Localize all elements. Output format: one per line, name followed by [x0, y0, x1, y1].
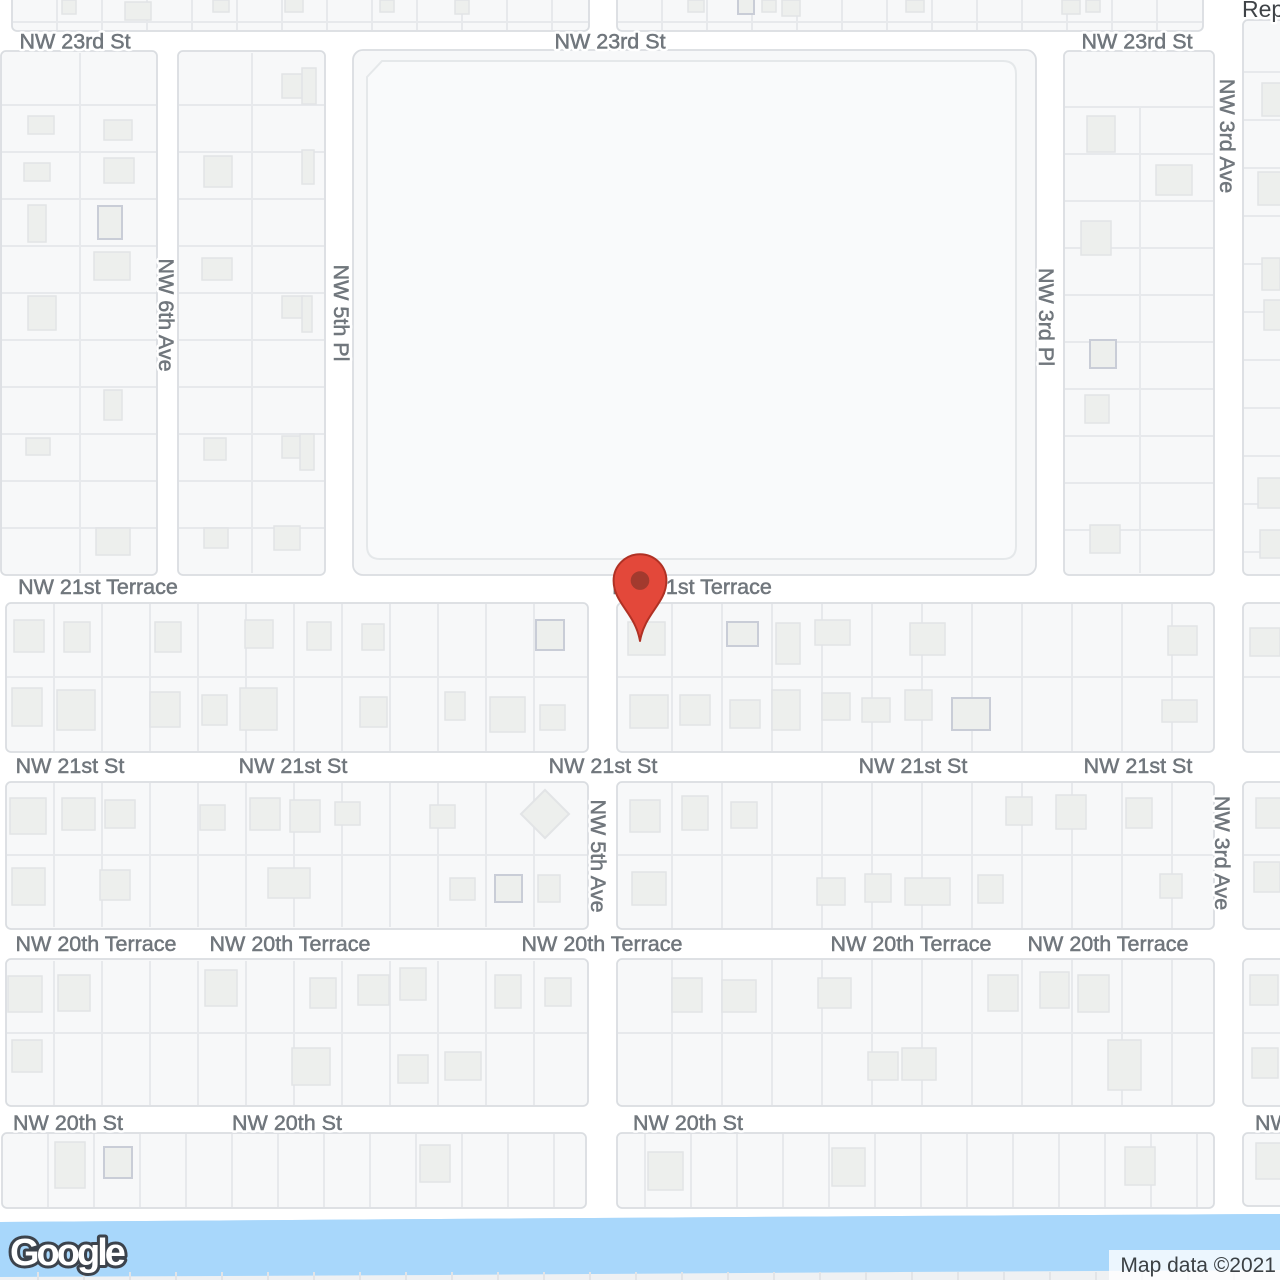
- svg-text:NW 21st St: NW 21st St: [1084, 754, 1193, 778]
- svg-text:NW 21st Terrace: NW 21st Terrace: [18, 575, 178, 599]
- svg-text:NW 20th Terrace: NW 20th Terrace: [210, 932, 371, 956]
- svg-text:NW 21st St: NW 21st St: [859, 754, 968, 778]
- svg-text:NW 20th Terrace: NW 20th Terrace: [522, 932, 683, 956]
- svg-text:NW 5th Pl: NW 5th Pl: [329, 265, 353, 362]
- svg-text:NW 21st St: NW 21st St: [549, 754, 658, 778]
- svg-text:NW 5th Ave: NW 5th Ave: [586, 799, 610, 912]
- svg-text:NW 6th Ave: NW 6th Ave: [154, 258, 178, 371]
- svg-text:NW 20th St: NW 20th St: [1255, 1111, 1280, 1135]
- svg-text:Repu: Repu: [1242, 0, 1280, 22]
- svg-text:NW 23rd St: NW 23rd St: [554, 30, 665, 54]
- svg-text:NW 3rd Ave: NW 3rd Ave: [1210, 796, 1234, 910]
- svg-text:NW 23rd St: NW 23rd St: [1081, 30, 1192, 54]
- svg-text:NW 21st St: NW 21st St: [16, 754, 125, 778]
- svg-text:NW 3rd Ave: NW 3rd Ave: [1215, 79, 1239, 193]
- svg-text:NW 23rd St: NW 23rd St: [19, 30, 130, 54]
- svg-text:Map data ©2021: Map data ©2021: [1120, 1254, 1276, 1277]
- svg-text:NW 20th Terrace: NW 20th Terrace: [16, 932, 177, 956]
- svg-text:NW 21st St: NW 21st St: [239, 754, 348, 778]
- svg-text:NW 20th Terrace: NW 20th Terrace: [1028, 932, 1189, 956]
- svg-text:NW 20th St: NW 20th St: [13, 1111, 123, 1135]
- svg-text:NW 20th Terrace: NW 20th Terrace: [831, 932, 992, 956]
- svg-text:NW 20th St: NW 20th St: [232, 1111, 342, 1135]
- svg-text:NW 3rd Pl: NW 3rd Pl: [1034, 268, 1058, 366]
- svg-text:Google: Google: [10, 1232, 125, 1274]
- svg-text:NW 20th St: NW 20th St: [633, 1111, 743, 1135]
